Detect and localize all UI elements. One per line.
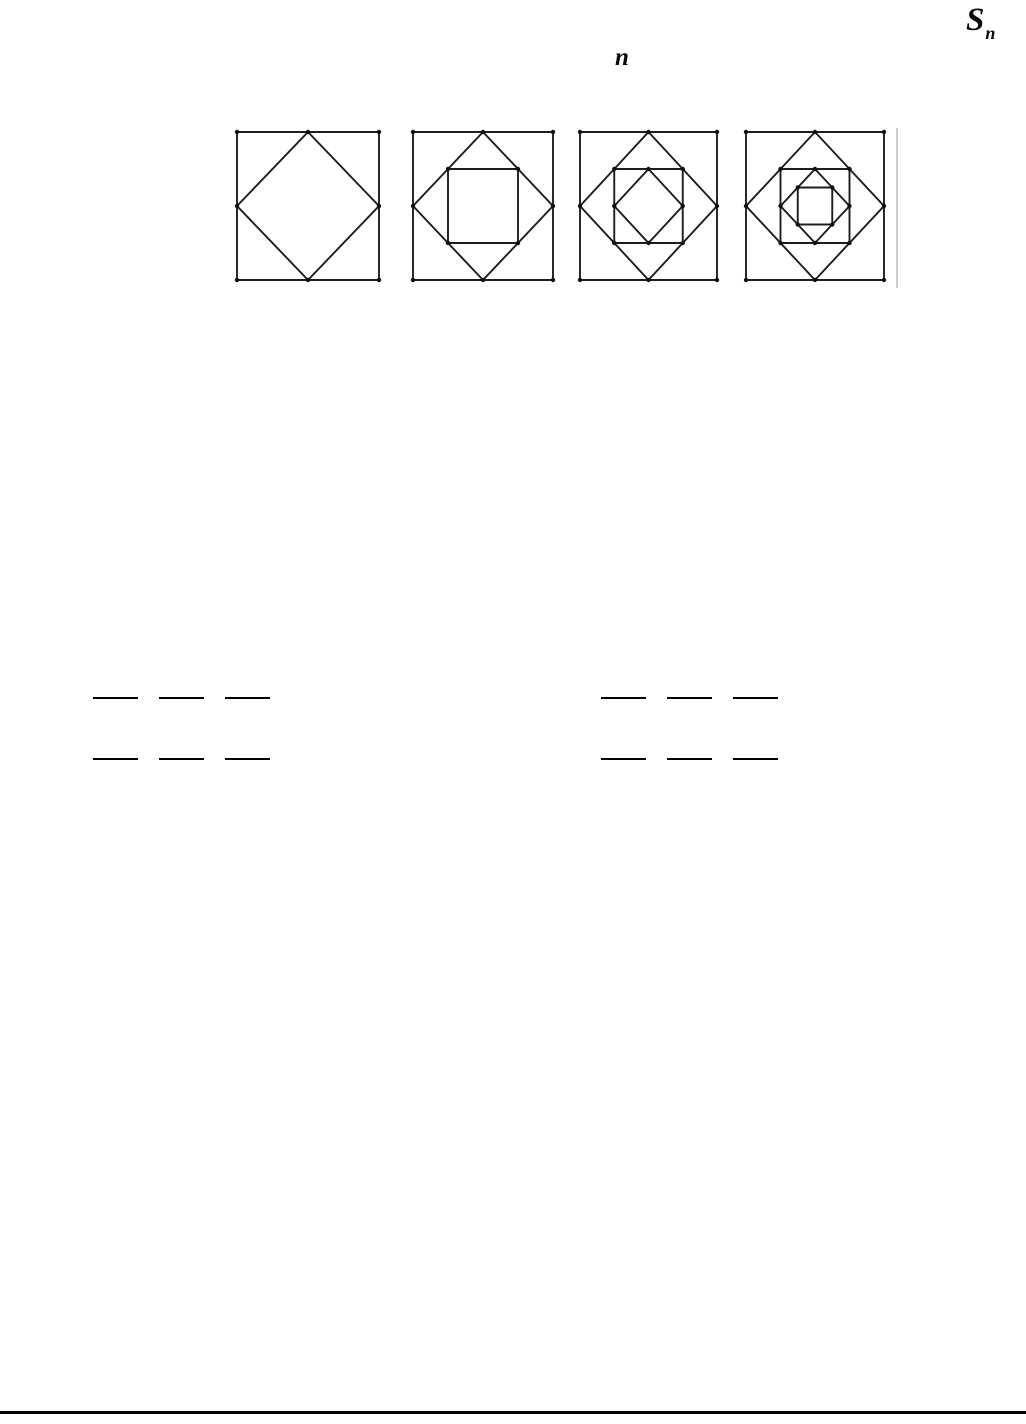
vertex-dot — [681, 167, 685, 171]
formula-sn-base: S — [966, 2, 984, 38]
nested-squares-figure-1 — [234, 129, 382, 283]
answer-blank-line[interactable] — [667, 758, 712, 760]
answer-blank-line[interactable] — [733, 697, 778, 699]
vertex-dot — [715, 130, 719, 134]
vertex-dot — [306, 130, 310, 134]
vertex-dot — [796, 222, 800, 226]
figure-3-square-3 — [614, 169, 683, 243]
scan-artifact-line — [896, 128, 898, 288]
figure-3-svg — [577, 129, 720, 283]
answer-blank-line[interactable] — [159, 697, 204, 699]
vertex-dot — [377, 204, 381, 208]
answer-blank-line[interactable] — [225, 697, 270, 699]
vertex-dot — [715, 204, 719, 208]
vertex-dot — [744, 130, 748, 134]
vertex-dot — [578, 278, 582, 282]
variable-n: n — [615, 44, 629, 72]
vertex-dot — [681, 241, 685, 245]
vertex-dot — [481, 130, 485, 134]
figure-3-square-4 — [614, 169, 683, 243]
vertex-dot — [830, 185, 834, 189]
figure-4-square-3 — [781, 169, 850, 243]
figure-3-square-1 — [580, 132, 717, 280]
vertex-dot — [446, 167, 450, 171]
vertex-dot — [578, 130, 582, 134]
figure-4-svg — [743, 129, 887, 283]
answer-blank-line[interactable] — [601, 758, 646, 760]
vertex-dot — [882, 278, 886, 282]
answer-blanks-left — [93, 697, 273, 762]
vertex-dot — [646, 130, 650, 134]
right-group-row-2 — [601, 758, 778, 760]
vertex-dot — [813, 241, 817, 245]
figure-4-square-4 — [781, 169, 850, 243]
vertex-dot — [681, 204, 685, 208]
vertex-dot — [551, 130, 555, 134]
right-group-row-1 — [601, 697, 778, 699]
vertex-dot — [377, 130, 381, 134]
vertex-dot — [882, 130, 886, 134]
vertex-dot — [796, 185, 800, 189]
vertex-dot — [646, 278, 650, 282]
figure-3-square-2 — [580, 132, 717, 280]
formula-sn: Sn — [966, 2, 994, 39]
vertex-dot — [778, 167, 782, 171]
worksheet-page: Sn n — [0, 0, 1026, 1424]
vertex-dot — [778, 241, 782, 245]
vertex-dot — [813, 278, 817, 282]
figure-1-square-2 — [237, 132, 379, 280]
figure-2-svg — [410, 129, 556, 283]
answer-blanks-right — [601, 697, 781, 762]
answer-blank-line[interactable] — [159, 758, 204, 760]
left-group-row-1 — [93, 697, 270, 699]
figure-4-square-2 — [746, 132, 884, 280]
left-group-row-2 — [93, 758, 270, 760]
figure-1-svg — [234, 129, 382, 283]
nested-squares-figure-4 — [743, 129, 887, 283]
answer-blank-line[interactable] — [667, 697, 712, 699]
vertex-dot — [744, 204, 748, 208]
figure-4-square-5 — [798, 188, 833, 225]
vertex-dot — [551, 278, 555, 282]
vertex-dot — [612, 167, 616, 171]
figure-2-square-2 — [413, 132, 553, 280]
vertex-dot — [235, 204, 239, 208]
vertex-dot — [847, 167, 851, 171]
figure-4-square-1 — [746, 132, 884, 280]
answer-blank-line[interactable] — [93, 758, 138, 760]
answer-blank-line[interactable] — [733, 758, 778, 760]
vertex-dot — [516, 241, 520, 245]
vertex-dot — [612, 204, 616, 208]
answer-blank-line[interactable] — [93, 697, 138, 699]
vertex-dot — [306, 278, 310, 282]
vertex-dot — [744, 278, 748, 282]
vertex-dot — [578, 204, 582, 208]
vertex-dot — [778, 204, 782, 208]
page-bottom-rule — [0, 1411, 1026, 1414]
vertex-dot — [411, 204, 415, 208]
vertex-dot — [847, 241, 851, 245]
vertex-dot — [830, 222, 834, 226]
nested-squares-figure-2 — [410, 129, 556, 283]
vertex-dot — [646, 241, 650, 245]
nested-squares-figure-3 — [577, 129, 720, 283]
vertex-dot — [813, 130, 817, 134]
vertex-dot — [516, 167, 520, 171]
answer-blank-line[interactable] — [225, 758, 270, 760]
vertex-dot — [715, 278, 719, 282]
figure-2-square-3 — [448, 169, 518, 243]
figure-2-square-1 — [413, 132, 553, 280]
vertex-dot — [411, 278, 415, 282]
vertex-dot — [481, 278, 485, 282]
vertex-dot — [813, 167, 817, 171]
vertex-dot — [377, 278, 381, 282]
figure-1-square-1 — [237, 132, 379, 280]
vertex-dot — [235, 278, 239, 282]
answer-blank-line[interactable] — [601, 697, 646, 699]
vertex-dot — [612, 241, 616, 245]
vertex-dot — [551, 204, 555, 208]
vertex-dot — [882, 204, 886, 208]
vertex-dot — [411, 130, 415, 134]
vertex-dot — [446, 241, 450, 245]
vertex-dot — [646, 167, 650, 171]
vertex-dot — [847, 204, 851, 208]
vertex-dot — [235, 130, 239, 134]
formula-sn-subscript: n — [985, 23, 995, 43]
